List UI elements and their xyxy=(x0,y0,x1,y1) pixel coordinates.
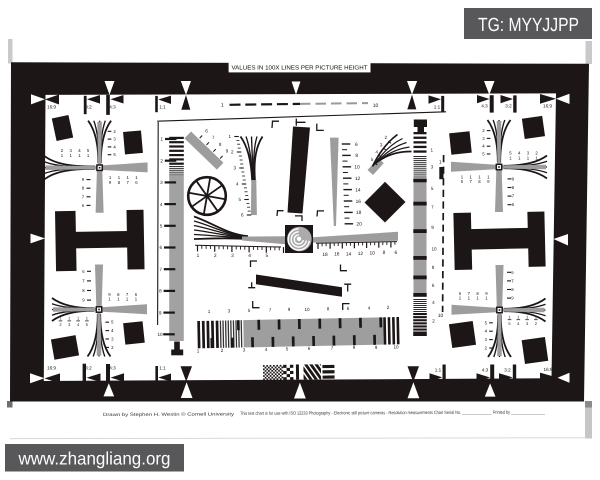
svg-text:10: 10 xyxy=(373,103,379,109)
svg-text:4: 4 xyxy=(160,202,163,207)
svg-text:3: 3 xyxy=(380,142,383,147)
svg-text:7: 7 xyxy=(431,205,434,210)
svg-text:16:9: 16:9 xyxy=(47,104,56,109)
svg-text:8: 8 xyxy=(159,289,162,294)
svg-text:5: 5 xyxy=(160,224,163,229)
svg-text:16:9: 16:9 xyxy=(544,367,553,372)
svg-text:18: 18 xyxy=(356,210,362,216)
svg-text:5: 5 xyxy=(248,308,251,313)
svg-text:2: 2 xyxy=(160,158,163,163)
svg-text:16:9: 16:9 xyxy=(543,103,552,108)
svg-text:1: 1 xyxy=(161,137,164,142)
svg-text:2: 2 xyxy=(387,305,390,310)
svg-text:6: 6 xyxy=(160,245,163,250)
svg-text:4:3: 4:3 xyxy=(482,367,489,372)
svg-text:10: 10 xyxy=(393,344,399,349)
svg-text:3:2: 3:2 xyxy=(505,104,512,109)
svg-text:6: 6 xyxy=(308,346,311,351)
svg-text:9: 9 xyxy=(159,310,162,315)
svg-text:10: 10 xyxy=(157,332,163,337)
svg-text:www.zhangliang.org: www.zhangliang.org xyxy=(18,448,171,468)
svg-text:5: 5 xyxy=(431,186,434,191)
svg-text:12: 12 xyxy=(358,251,364,257)
svg-text:1: 1 xyxy=(197,349,200,354)
svg-text:9: 9 xyxy=(375,345,378,350)
svg-text:10: 10 xyxy=(370,251,376,257)
svg-text:8: 8 xyxy=(432,265,435,270)
svg-text:5: 5 xyxy=(239,197,242,202)
svg-text:8: 8 xyxy=(327,306,330,311)
svg-text:5: 5 xyxy=(371,157,374,162)
svg-text:14: 14 xyxy=(346,251,352,257)
svg-text:10: 10 xyxy=(304,307,310,312)
svg-text:4: 4 xyxy=(236,182,239,187)
svg-text:3: 3 xyxy=(431,165,434,170)
svg-text:5: 5 xyxy=(286,347,289,352)
svg-text:1:1: 1:1 xyxy=(435,367,442,372)
svg-text:4: 4 xyxy=(265,347,268,352)
svg-text:4:3: 4:3 xyxy=(481,104,488,109)
svg-text:3: 3 xyxy=(160,180,163,185)
svg-text:8: 8 xyxy=(383,250,386,256)
svg-text:12: 12 xyxy=(355,176,361,182)
svg-text:1: 1 xyxy=(431,148,434,153)
svg-text:8: 8 xyxy=(355,153,358,159)
svg-text:10: 10 xyxy=(432,247,438,252)
svg-text:16: 16 xyxy=(334,252,340,258)
svg-text:6: 6 xyxy=(347,306,350,311)
svg-text:1: 1 xyxy=(229,134,232,139)
svg-text:4: 4 xyxy=(375,150,378,155)
svg-text:18: 18 xyxy=(322,252,328,258)
svg-text:3: 3 xyxy=(234,166,237,171)
svg-text:4:3: 4:3 xyxy=(109,366,116,371)
svg-text:9: 9 xyxy=(288,307,291,312)
svg-text:6: 6 xyxy=(394,250,397,256)
svg-text:9: 9 xyxy=(431,225,434,230)
svg-text:14: 14 xyxy=(355,187,361,193)
svg-text:1:1: 1:1 xyxy=(159,366,166,371)
svg-text:16:9: 16:9 xyxy=(47,366,56,371)
svg-text:3:2: 3:2 xyxy=(504,367,511,372)
svg-text:1: 1 xyxy=(221,103,224,109)
svg-text:5: 5 xyxy=(265,253,268,259)
svg-text:3: 3 xyxy=(228,309,231,314)
svg-text:VALUES IN 100X LINES PER PICTU: VALUES IN 100X LINES PER PICTURE HEIGHT xyxy=(232,65,368,72)
svg-text:8: 8 xyxy=(353,345,356,350)
svg-text:2: 2 xyxy=(385,135,388,140)
svg-text:2: 2 xyxy=(214,253,217,259)
svg-text:7: 7 xyxy=(159,267,162,272)
svg-text:2: 2 xyxy=(221,348,224,353)
svg-text:20: 20 xyxy=(356,222,362,228)
svg-text:7: 7 xyxy=(331,346,334,351)
svg-text:6: 6 xyxy=(432,283,435,288)
svg-text:4:3: 4:3 xyxy=(109,104,116,109)
svg-text:1:1: 1:1 xyxy=(159,104,166,109)
svg-text:1: 1 xyxy=(208,309,211,314)
svg-text:3:2: 3:2 xyxy=(85,104,92,109)
svg-text:3: 3 xyxy=(243,348,246,353)
svg-text:3:2: 3:2 xyxy=(85,366,92,371)
svg-text:4: 4 xyxy=(432,300,435,305)
svg-text:16: 16 xyxy=(356,199,362,205)
svg-text:9: 9 xyxy=(226,149,229,154)
svg-text:6: 6 xyxy=(241,213,244,218)
svg-text:4: 4 xyxy=(248,253,251,259)
svg-text:2: 2 xyxy=(231,150,234,155)
svg-text:8: 8 xyxy=(219,142,222,147)
svg-text:7: 7 xyxy=(212,135,215,140)
svg-text:3: 3 xyxy=(231,253,234,259)
svg-text:6: 6 xyxy=(205,128,208,133)
svg-text:6: 6 xyxy=(355,142,358,148)
svg-text:7: 7 xyxy=(269,308,272,313)
svg-text:TG: MYYJJPP: TG: MYYJJPP xyxy=(478,15,579,36)
svg-text:4: 4 xyxy=(368,306,371,311)
svg-text:2: 2 xyxy=(432,319,435,324)
svg-text:1: 1 xyxy=(439,160,442,166)
svg-text:10: 10 xyxy=(438,313,444,319)
svg-text:10: 10 xyxy=(354,165,360,171)
svg-text:1:1: 1:1 xyxy=(434,105,441,110)
svg-text:1: 1 xyxy=(197,253,200,259)
svg-text:Drawn by Stephen H. Westin © C: Drawn by Stephen H. Westin © Cornell Uni… xyxy=(103,411,235,417)
